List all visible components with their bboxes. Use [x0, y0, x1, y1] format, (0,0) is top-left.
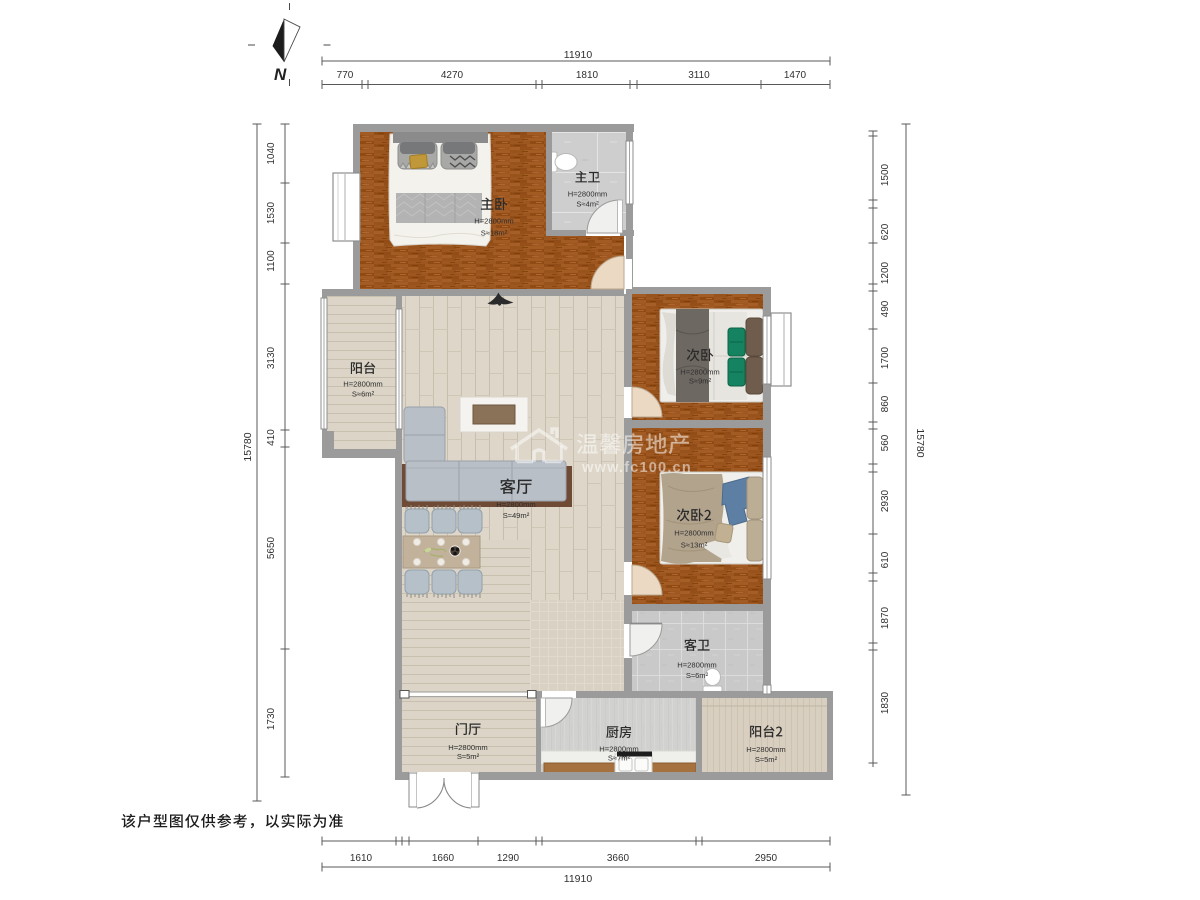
svg-text:1610: 1610	[350, 853, 373, 864]
svg-text:H=2800mm: H=2800mm	[474, 217, 513, 226]
svg-text:H=2800mm: H=2800mm	[496, 500, 535, 509]
svg-text:H=2800mm: H=2800mm	[599, 745, 638, 754]
svg-text:3110: 3110	[688, 70, 710, 81]
svg-text:2950: 2950	[755, 853, 778, 864]
svg-text:15780: 15780	[914, 428, 926, 457]
svg-text:S≈6m²: S≈6m²	[352, 390, 375, 399]
svg-text:560: 560	[880, 434, 891, 451]
svg-text:3660: 3660	[607, 853, 630, 864]
svg-text:1500: 1500	[880, 163, 891, 186]
svg-text:1200: 1200	[880, 261, 891, 284]
svg-text:1660: 1660	[432, 853, 455, 864]
svg-text:4270: 4270	[441, 70, 464, 81]
svg-text:860: 860	[880, 395, 891, 412]
svg-text:1830: 1830	[880, 691, 891, 714]
svg-text:S≈5m²: S≈5m²	[457, 752, 480, 761]
svg-text:H=2800mm: H=2800mm	[448, 743, 487, 752]
svg-text:410: 410	[266, 429, 277, 446]
svg-text:1100: 1100	[266, 250, 277, 272]
svg-text:S≈6m²: S≈6m²	[686, 671, 709, 680]
svg-text:1530: 1530	[266, 201, 277, 224]
svg-text:1730: 1730	[266, 707, 277, 730]
svg-text:1700: 1700	[880, 346, 891, 369]
svg-text:H=2800mm: H=2800mm	[677, 660, 716, 669]
svg-text:S≈5m²: S≈5m²	[755, 755, 778, 764]
svg-text:11910: 11910	[564, 49, 593, 61]
svg-text:S≈18m²: S≈18m²	[481, 229, 508, 238]
svg-text:11910: 11910	[564, 873, 593, 885]
svg-text:S≈7m²: S≈7m²	[608, 754, 631, 763]
svg-text:www.fc100.cn: www.fc100.cn	[581, 460, 692, 476]
svg-text:N: N	[274, 65, 287, 84]
svg-text:H=2800mm: H=2800mm	[680, 368, 719, 377]
svg-text:490: 490	[880, 300, 891, 317]
svg-text:2930: 2930	[880, 489, 891, 512]
svg-text:1810: 1810	[576, 70, 599, 81]
svg-text:H=2800mm: H=2800mm	[343, 380, 382, 389]
svg-text:S≈49m²: S≈49m²	[503, 511, 530, 520]
svg-text:3130: 3130	[266, 346, 277, 369]
svg-text:770: 770	[337, 70, 354, 81]
svg-text:1040: 1040	[266, 142, 277, 165]
svg-text:H=2800mm: H=2800mm	[746, 745, 785, 754]
svg-text:1290: 1290	[497, 853, 520, 864]
svg-text:610: 610	[880, 551, 891, 568]
svg-text:5650: 5650	[266, 536, 277, 559]
svg-text:620: 620	[880, 223, 891, 240]
svg-text:1470: 1470	[784, 70, 807, 81]
svg-text:H=2800mm: H=2800mm	[568, 190, 607, 199]
svg-text:S≈13m²: S≈13m²	[681, 541, 708, 550]
svg-text:15780: 15780	[242, 432, 254, 461]
svg-text:S≈9m²: S≈9m²	[689, 377, 712, 386]
svg-text:H=2800mm: H=2800mm	[674, 529, 713, 538]
svg-text:S≈4m²: S≈4m²	[576, 200, 599, 209]
svg-text:1870: 1870	[880, 606, 891, 629]
